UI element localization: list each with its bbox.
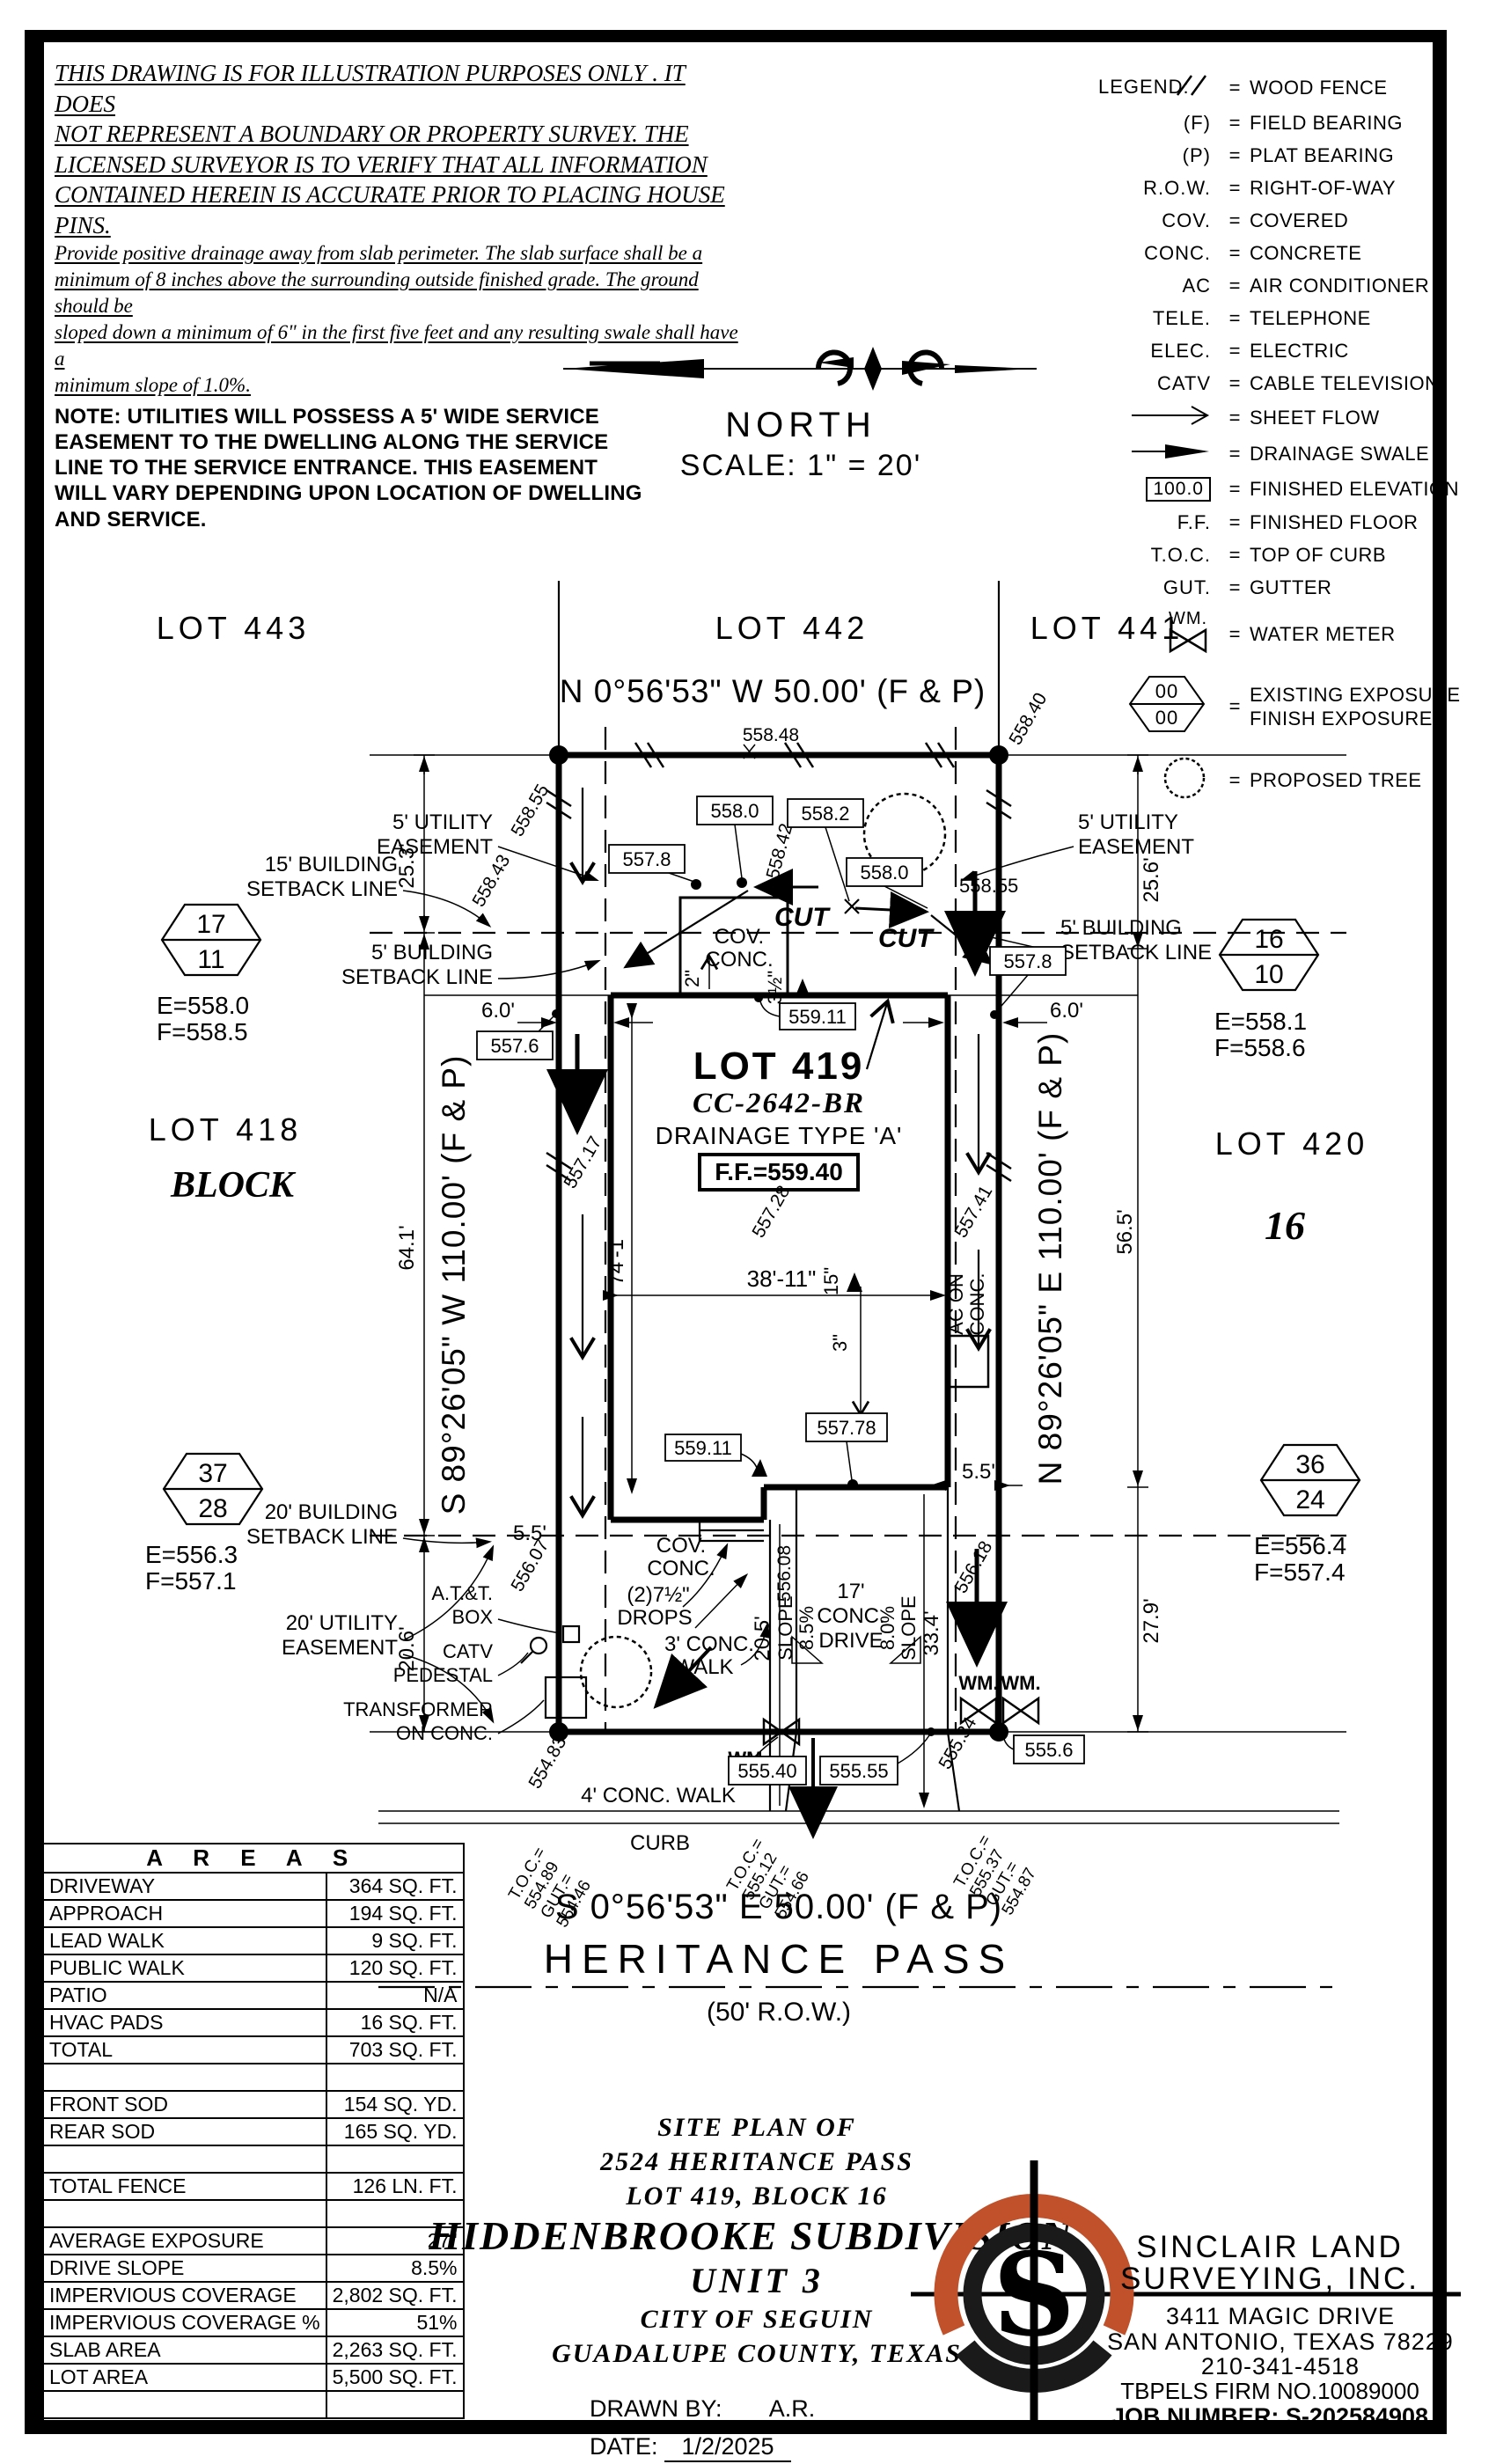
table-row: LEAD WALK9 SQ. FT.: [43, 1927, 464, 1954]
svg-text:37: 37: [198, 1459, 227, 1488]
tree-symbol: [581, 1637, 651, 1707]
walk3-label-1: 3' CONC.: [664, 1632, 754, 1656]
svg-text:559.11: 559.11: [674, 1437, 732, 1459]
svg-text:F=557.4: F=557.4: [1254, 1558, 1346, 1586]
elev-558-43: 558.43: [468, 851, 514, 910]
svg-text:WM.: WM.: [958, 1672, 998, 1694]
boxed-559-11b: 559.11: [665, 1434, 767, 1477]
svg-text:SETBACK LINE: SETBACK LINE: [1060, 941, 1212, 964]
svg-text:A.T.&T.: A.T.&T.: [431, 1582, 493, 1604]
elev-558-40: 558.40: [1005, 689, 1051, 748]
svg-text:10: 10: [1254, 960, 1283, 989]
walk3-label-2: WALK: [674, 1655, 733, 1679]
svg-text:ON CONC.: ON CONC.: [396, 1722, 493, 1744]
svg-text:6.0': 6.0': [1050, 999, 1083, 1023]
east-bearing: N 89°26'05" E 110.00' (F & P): [1032, 1032, 1068, 1485]
svg-text:555.6: 555.6: [1024, 1739, 1073, 1761]
table-row: IMPERVIOUS COVERAGE2,802 SQ. FT.: [43, 2282, 464, 2309]
elev-556-08: 556.08: [774, 1545, 795, 1602]
boxed-557-78: 557.78: [806, 1413, 887, 1490]
svg-text:28: 28: [198, 1494, 227, 1523]
svg-text:16: 16: [1254, 925, 1283, 954]
svg-text:11: 11: [197, 945, 224, 974]
walk4-label: 4' CONC. WALK: [581, 1784, 736, 1808]
table-row: TOTAL703 SQ. FT.: [43, 2036, 464, 2064]
label-lot-441: LOT 441: [1030, 610, 1184, 646]
exposure-hexagons: 17 11 E=558.0 F=558.5 16 10 E=558.1 F=55…: [145, 905, 1360, 1595]
table-row: REAR SOD165 SQ. YD.: [43, 2118, 464, 2145]
svg-text:EASEMENT: EASEMENT: [282, 1636, 398, 1660]
drops-label-1: (2)7½": [627, 1583, 689, 1607]
firm-phone: 210-341-4518: [1201, 2353, 1360, 2380]
label-finished-floor: F.F.=559.40: [715, 1158, 843, 1185]
elev-558-42: 558.42: [763, 821, 797, 881]
table-row: [43, 2064, 464, 2091]
ac-label-2: CONC.: [966, 1273, 988, 1336]
south-bearing: S 0°56'53" E 50.00' (F & P): [555, 1888, 1002, 1926]
dim-64-1: 64.1': [395, 1225, 419, 1270]
svg-text:17: 17: [196, 910, 225, 939]
dim-3half: 3½": [764, 971, 786, 1004]
svg-text:WM.: WM.: [1001, 1672, 1040, 1694]
drawn-by-value: A.R.: [729, 2395, 855, 2424]
svg-text:DRIVE: DRIVE: [818, 1629, 883, 1653]
box-557-8: 557.8: [622, 848, 671, 870]
firm-block: S SINCLAIR LAND SURVEYING, INC. 3411 MAG…: [911, 2134, 1461, 2433]
firm-tbpels: TBPELS FIRM NO.10089000: [1120, 2378, 1419, 2404]
svg-text:557.6: 557.6: [490, 1035, 539, 1057]
svg-text:5' UTILITY: 5' UTILITY: [392, 810, 493, 834]
elev-555-34: 555.34: [935, 1713, 980, 1772]
svg-text:5' BUILDING: 5' BUILDING: [1060, 916, 1182, 940]
firm-address-1: 3411 MAGIC DRIVE: [1166, 2303, 1395, 2329]
svg-text:E=558.1: E=558.1: [1214, 1008, 1307, 1035]
elev-554-83: 554.83: [524, 1733, 570, 1792]
elev-556-18: 556.18: [950, 1537, 996, 1596]
cut-label: CUT: [878, 924, 935, 953]
date-value: 1/2/2025: [664, 2433, 791, 2462]
dim-2in: 2": [681, 970, 703, 987]
svg-text:6.0': 6.0': [481, 999, 515, 1023]
svg-text:F=557.1: F=557.1: [145, 1567, 237, 1595]
table-row: HVAC PADS16 SQ. FT.: [43, 2009, 464, 2036]
table-row: [43, 2391, 464, 2418]
svg-text:557.78: 557.78: [817, 1417, 876, 1439]
svg-text:SETBACK LINE: SETBACK LINE: [341, 965, 493, 989]
table-row: DRIVEWAY364 SQ. FT.: [43, 1873, 464, 1900]
table-row: [43, 2200, 464, 2227]
boxed-555-55: 555.55: [820, 1727, 935, 1785]
drawn-by-label: DRAWN BY:: [590, 2395, 722, 2422]
svg-text:15' BUILDING: 15' BUILDING: [265, 853, 398, 876]
ac-label-1: AC ON: [945, 1273, 967, 1335]
dim-25-3: 25.3': [395, 843, 419, 888]
svg-text:557.8: 557.8: [1003, 950, 1052, 972]
svg-text:5' UTILITY: 5' UTILITY: [1078, 810, 1178, 834]
svg-text:SETBACK LINE: SETBACK LINE: [246, 877, 398, 901]
box-558-0b: 558.0: [860, 862, 908, 884]
svg-text:SLOPE: SLOPE: [898, 1595, 920, 1660]
table-row: PUBLIC WALK120 SQ. FT.: [43, 1954, 464, 1982]
dim-27-9: 27.9': [1140, 1598, 1163, 1643]
elev-558-55: 558.55: [507, 781, 553, 840]
box-558-0: 558.0: [710, 800, 759, 822]
dim-74-1: 74'-1": [605, 1231, 628, 1285]
dim-15in: 15": [820, 1267, 842, 1295]
svg-text:5' BUILDING: 5' BUILDING: [371, 941, 493, 964]
table-row: TOTAL FENCE126 LN. FT.: [43, 2173, 464, 2200]
svg-text:CONC.: CONC.: [705, 948, 773, 972]
svg-text:559.11: 559.11: [788, 1006, 847, 1028]
svg-text:20' BUILDING: 20' BUILDING: [265, 1500, 398, 1524]
label-lot-443: LOT 443: [157, 610, 310, 646]
table-row: PATION/A: [43, 1982, 464, 2009]
svg-text:555.55: 555.55: [829, 1760, 888, 1782]
elev-557-17: 557.17: [560, 1133, 605, 1192]
label-plan-code: CC-2642-BR: [693, 1088, 865, 1119]
table-row: [43, 2145, 464, 2173]
box-558-2: 558.2: [801, 803, 849, 825]
firm-name-2: SURVEYING, INC.: [1120, 2262, 1419, 2296]
dim-5-5-right: 5.5': [962, 1460, 995, 1484]
dim-56-5: 56.5': [1113, 1209, 1137, 1254]
table-row: LOT AREA5,500 SQ. FT.: [43, 2364, 464, 2391]
street-name: HERITANCE PASS: [544, 1936, 1014, 1982]
cov-conc-top: COV.: [715, 925, 764, 949]
row-label: (50' R.O.W.): [707, 1998, 851, 2027]
table-row: IMPERVIOUS COVERAGE %51%: [43, 2309, 464, 2336]
svg-text:555.40: 555.40: [737, 1760, 796, 1782]
svg-text:E=558.0: E=558.0: [157, 992, 249, 1019]
dim-25-6: 25.6': [1140, 857, 1163, 902]
slope-85-label: SLOPE: [774, 1595, 796, 1660]
svg-text:CONC.: CONC.: [817, 1604, 884, 1628]
svg-text:SETBACK LINE: SETBACK LINE: [246, 1525, 398, 1549]
svg-text:TRANSFORMER: TRANSFORMER: [343, 1698, 493, 1720]
cut-label: CUT: [774, 903, 831, 932]
north-bearing: N 0°56'53" W 50.00' (F & P): [560, 673, 986, 709]
table-row: SLAB AREA2,263 SQ. FT.: [43, 2336, 464, 2364]
firm-address-2: SAN ANTONIO, TEXAS 78229: [1107, 2328, 1454, 2355]
svg-text:E=556.3: E=556.3: [145, 1541, 238, 1568]
label-drainage-type: DRAINAGE TYPE 'A': [656, 1122, 903, 1149]
svg-text:24: 24: [1295, 1485, 1324, 1514]
areas-table: A R E A S DRIVEWAY364 SQ. FT. APPROACH19…: [42, 1843, 465, 2419]
table-row: FRONT SOD154 SQ. YD.: [43, 2091, 464, 2118]
table-row: APPROACH194 SQ. FT.: [43, 1900, 464, 1927]
boxed-555-6: 555.6: [1003, 1735, 1084, 1764]
svg-text:F=558.5: F=558.5: [157, 1018, 248, 1045]
dim-33-4: 33.4': [920, 1610, 943, 1655]
firm-job-number: JOB NUMBER: S-202584908: [1111, 2403, 1428, 2430]
drops-label-2: DROPS: [617, 1606, 692, 1630]
label-lot-420: LOT 420: [1215, 1126, 1368, 1162]
label-lot-419: LOT 419: [693, 1045, 865, 1088]
date-label: DATE:: [590, 2433, 658, 2460]
label-lot-442: LOT 442: [715, 610, 869, 646]
svg-text:36: 36: [1295, 1450, 1324, 1479]
svg-text:CATV: CATV: [443, 1640, 493, 1662]
elev-557-41: 557.41: [950, 1182, 996, 1241]
dim-3in: 3": [829, 1334, 851, 1352]
table-row: DRIVE SLOPE8.5%: [43, 2255, 464, 2282]
label-block: BLOCK: [170, 1165, 297, 1206]
dim-38-11: 38'-11": [747, 1265, 817, 1292]
site-plan-page: THIS DRAWING IS FOR ILLUSTRATION PURPOSE…: [0, 0, 1496, 2464]
curb-label: CURB: [630, 1831, 690, 1855]
svg-text:PEDESTAL: PEDESTAL: [393, 1664, 493, 1686]
drive-label-1: 17': [837, 1580, 864, 1603]
areas-title: A R E A S: [43, 1844, 464, 1873]
svg-text:CONC.: CONC.: [647, 1557, 715, 1580]
west-bearing: S 89°26'05" W 110.00' (F & P): [436, 1055, 472, 1515]
label-block-16: 16: [1265, 1203, 1305, 1248]
water-meters: WM. WM. WM.: [728, 1672, 1040, 1770]
dim-20-5: 20.5': [751, 1616, 774, 1661]
svg-text:20' UTILITY: 20' UTILITY: [286, 1611, 398, 1635]
svg-text:EASEMENT: EASEMENT: [1078, 835, 1194, 859]
label-lot-418: LOT 418: [149, 1111, 302, 1148]
elev-558-48: 558.48: [743, 725, 799, 745]
slope-80-label: 8.0%: [876, 1606, 898, 1650]
svg-text:BOX: BOX: [452, 1606, 494, 1628]
svg-text:F=558.6: F=558.6: [1214, 1034, 1306, 1061]
firm-name-1: SINCLAIR LAND: [1136, 2230, 1404, 2264]
svg-text:E=556.4: E=556.4: [1254, 1532, 1346, 1559]
table-row: AVERAGE EXPOSURE27": [43, 2227, 464, 2255]
cov-conc-bottom: COV.: [656, 1534, 706, 1558]
